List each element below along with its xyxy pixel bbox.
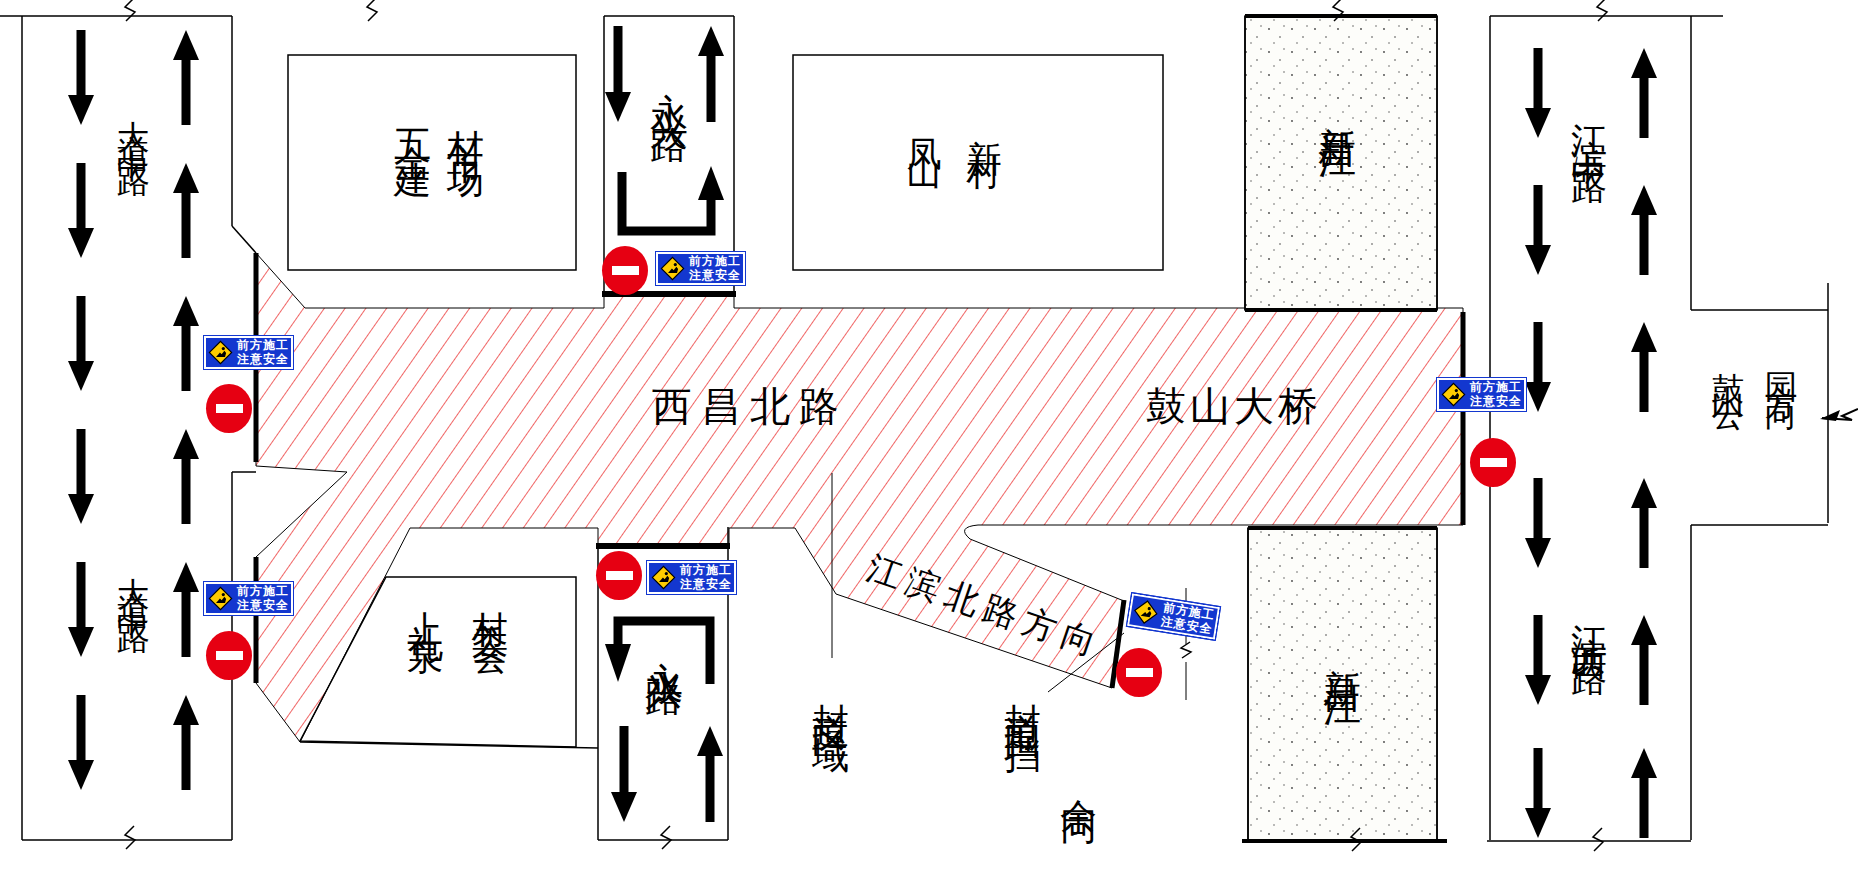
river-band-north [1245, 16, 1437, 310]
road-label-jiangbin-xi: 江滨西路 [1571, 596, 1607, 644]
construction-sign: 前方施工注意安全 [1436, 377, 1527, 412]
building-label-hardware-market-col2: 材市场 [447, 100, 484, 148]
sign-text-line1: 前方施工 [237, 338, 289, 352]
annotation-rest-same: 余同 [1060, 770, 1097, 792]
building-label-hardware-market-col1: 五金建 [394, 100, 431, 148]
sign-text-line1: 前方施工 [689, 254, 741, 268]
river-label-north: 新昌江 [1318, 96, 1356, 120]
building-label-shangliquan-col1: 上礼泉 [407, 582, 443, 624]
road-label-jiangbin-zhong: 江滨中路 [1571, 95, 1607, 155]
no-entry-sign [1470, 438, 1516, 487]
construction-sign: 前方施工注意安全 [646, 560, 737, 595]
road-closure-diagram: 大道中路 大道中路 永兴路 永兴路 西昌北路 鼓山大桥 江滨中路 江滨西路 江滨… [0, 0, 1858, 870]
road-label-gushan-bridge: 鼓山大桥 [1146, 386, 1322, 426]
road-label-yongxing-upper: 永兴路 [650, 62, 688, 113]
sign-text-line2: 注意安全 [680, 577, 732, 591]
river-band-south [1248, 528, 1437, 841]
construction-worker-icon [1440, 381, 1467, 408]
road-label-yongxing-lower: 永兴路 [645, 631, 683, 658]
no-entry-bar [612, 266, 639, 275]
construction-sign: 前方施工注意安全 [203, 581, 294, 616]
no-entry-bar [1126, 668, 1153, 677]
no-entry-bar [216, 651, 243, 660]
road-label-dadao-upper: 大道中路 [117, 94, 150, 154]
no-entry-bar [216, 404, 243, 413]
sign-text-line1: 前方施工 [680, 563, 732, 577]
no-entry-bar [1480, 458, 1507, 467]
sign-text-line2: 注意安全 [689, 268, 741, 282]
construction-worker-icon [207, 339, 234, 366]
no-entry-sign [206, 384, 252, 433]
sign-text-line1: 前方施工 [237, 584, 289, 598]
east-continuation-arrow [1820, 409, 1858, 421]
river-label-south: 新昌江 [1323, 638, 1361, 671]
building-label-fengshan-col2: 新村 [967, 111, 1002, 141]
annotation-closure-fence: 封道围挡 [1004, 674, 1041, 718]
construction-sign: 前方施工注意安全 [655, 251, 746, 286]
no-entry-sign [596, 551, 642, 600]
construction-worker-icon [1130, 597, 1161, 628]
building-label-shangliquan-col2: 村委会 [472, 582, 508, 624]
no-entry-sign [206, 631, 252, 680]
building-label-fengshan-col1: 凤山 [907, 111, 942, 141]
direction-label-gushan-park-col1: 鼓山公 [1712, 346, 1745, 385]
road-label-dadao-lower: 大道中路 [117, 551, 150, 611]
no-entry-sign [1116, 648, 1162, 697]
construction-worker-icon [650, 564, 677, 591]
annotation-closed-area: 封道区域 [812, 674, 849, 718]
sign-text-line2: 注意安全 [237, 598, 289, 612]
construction-worker-icon [659, 255, 686, 282]
sign-text-line1: 前方施工 [1470, 380, 1522, 394]
sign-text-line2: 注意安全 [1470, 394, 1522, 408]
no-entry-bar [606, 571, 633, 580]
road-label-xichang: 西昌北路 [652, 386, 848, 426]
no-entry-sign [602, 246, 648, 295]
construction-worker-icon [207, 585, 234, 612]
direction-label-gushan-park-col2: 园方向 [1765, 346, 1798, 385]
construction-sign: 前方施工注意安全 [203, 335, 294, 370]
sign-text-line2: 注意安全 [237, 352, 289, 366]
